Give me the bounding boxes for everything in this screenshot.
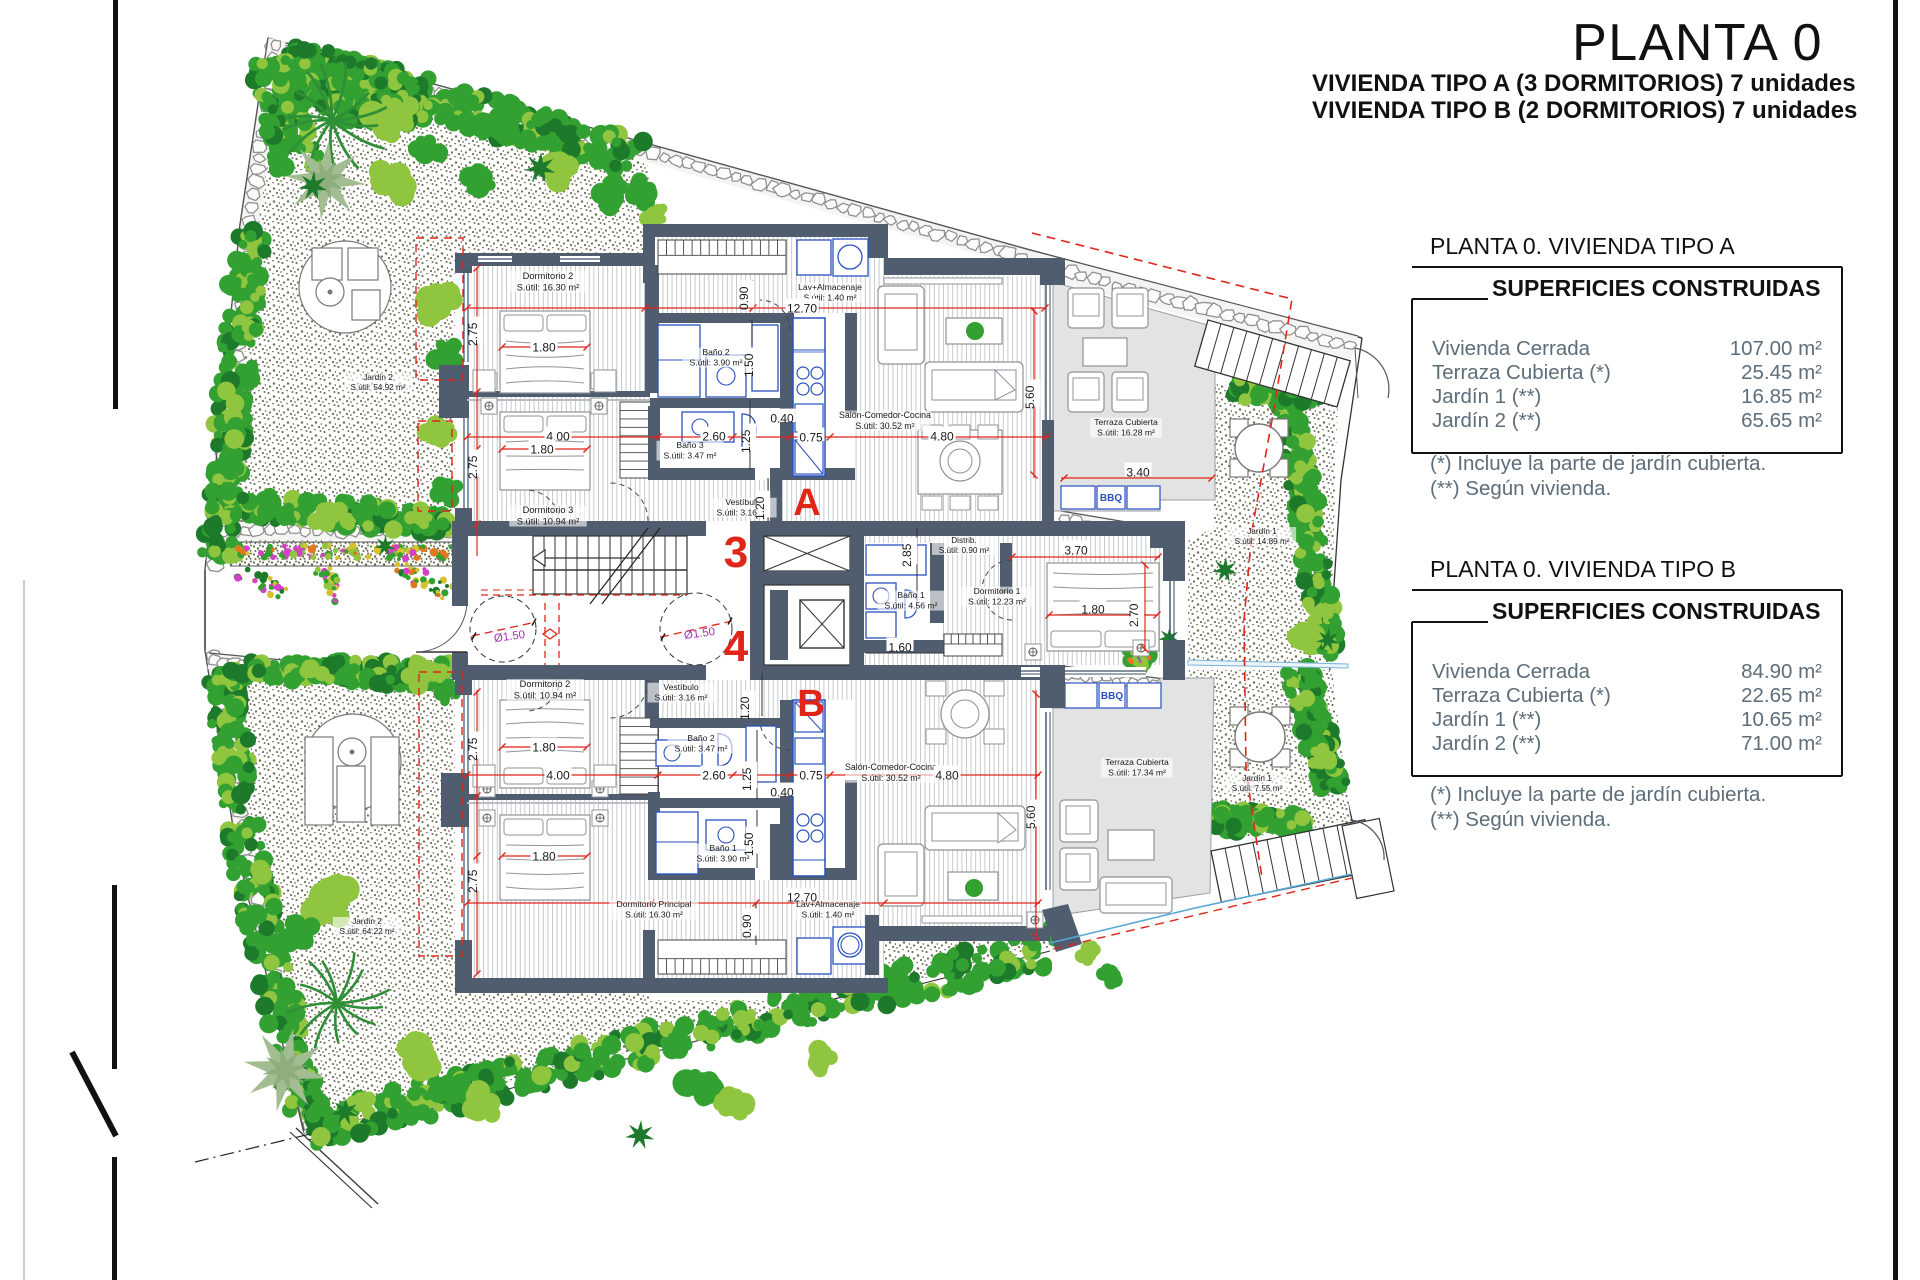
svg-text:Jardín 2: Jardín 2	[363, 373, 393, 382]
svg-text:Dormitorio 2: Dormitorio 2	[523, 271, 574, 281]
svg-text:0.75: 0.75	[799, 430, 823, 444]
svg-text:12.70: 12.70	[787, 301, 817, 315]
svg-text:Salón-Comedor-Cocina: Salón-Comedor-Cocina	[845, 762, 937, 772]
svg-text:107.00 m²: 107.00 m²	[1730, 337, 1822, 360]
svg-text:1.50: 1.50	[742, 353, 756, 377]
svg-text:3.40: 3.40	[1126, 465, 1150, 479]
svg-text:S.útil: 16.30 m²: S.útil: 16.30 m²	[517, 282, 580, 292]
svg-text:2.75: 2.75	[466, 737, 480, 761]
svg-text:(**) Según vivienda.: (**) Según vivienda.	[1430, 477, 1611, 500]
svg-text:Jardín 2 (**): Jardín 2 (**)	[1432, 409, 1541, 432]
svg-text:S.útil: 3.90 m²: S.útil: 3.90 m²	[689, 358, 742, 368]
svg-text:VIVIENDA TIPO A (3 DORMITORIOS: VIVIENDA TIPO A (3 DORMITORIOS) 7 unidad…	[1312, 70, 1856, 97]
svg-text:16.85 m²: 16.85 m²	[1741, 385, 1822, 408]
svg-text:PLANTA 0: PLANTA 0	[1572, 14, 1823, 72]
svg-text:5.60: 5.60	[1023, 385, 1037, 409]
svg-text:Baño 2: Baño 2	[702, 347, 729, 357]
svg-text:0.40: 0.40	[770, 411, 794, 425]
svg-text:S.útil: 30.52 m²: S.útil: 30.52 m²	[855, 421, 914, 431]
svg-text:S.útil: 0.90 m²: S.útil: 0.90 m²	[939, 546, 990, 555]
svg-text:12.70: 12.70	[787, 890, 817, 904]
svg-text:Salón-Comedor-Cocina: Salón-Comedor-Cocina	[839, 410, 931, 420]
svg-text:Jardín 2 (**): Jardín 2 (**)	[1432, 732, 1541, 755]
svg-text:Baño 3: Baño 3	[676, 440, 703, 450]
svg-text:B: B	[797, 683, 824, 725]
svg-text:S.útil: 10.94 m²: S.útil: 10.94 m²	[517, 516, 580, 526]
svg-text:S.útil: 64.22 m²: S.útil: 64.22 m²	[339, 927, 394, 936]
svg-text:4.00: 4.00	[546, 768, 570, 782]
svg-text:BBQ: BBQ	[1101, 691, 1123, 702]
svg-text:Dormitorio 1: Dormitorio 1	[974, 586, 1021, 596]
svg-text:Baño 2: Baño 2	[687, 733, 714, 743]
svg-text:SUPERFICIES CONSTRUIDAS: SUPERFICIES CONSTRUIDAS	[1492, 598, 1820, 624]
svg-text:Dormitorio 3: Dormitorio 3	[523, 505, 574, 515]
svg-text:S.útil: 17.34 m²: S.útil: 17.34 m²	[1108, 768, 1166, 778]
svg-text:S.útil: 7.55 m²: S.útil: 7.55 m²	[1232, 784, 1283, 793]
svg-text:Baño 1: Baño 1	[709, 843, 736, 853]
svg-text:Baño 1: Baño 1	[897, 590, 924, 600]
svg-text:PLANTA 0. VIVIENDA TIPO A: PLANTA 0. VIVIENDA TIPO A	[1430, 233, 1735, 259]
svg-text:S.útil: 14.89 m²: S.útil: 14.89 m²	[1234, 537, 1289, 546]
svg-text:1.25: 1.25	[739, 429, 753, 453]
svg-text:1.80: 1.80	[530, 442, 554, 456]
svg-text:1.20: 1.20	[738, 696, 752, 720]
svg-text:Jardín 1 (**): Jardín 1 (**)	[1432, 708, 1541, 731]
svg-text:S.útil: 3.47 m²: S.útil: 3.47 m²	[674, 744, 727, 754]
svg-text:22.65 m²: 22.65 m²	[1741, 684, 1822, 707]
svg-text:3.70: 3.70	[1064, 543, 1088, 557]
svg-text:(*) Incluye la parte de jardí: (*) Incluye la parte de jardín cubierta.	[1430, 783, 1766, 806]
svg-text:A: A	[793, 482, 820, 524]
svg-text:S.útil: 10.94 m²: S.útil: 10.94 m²	[514, 690, 577, 700]
svg-text:Jardín 1: Jardín 1	[1247, 527, 1277, 536]
svg-text:Jardín 1: Jardín 1	[1242, 774, 1272, 783]
svg-text:S.útil: 54.92 m²: S.útil: 54.92 m²	[350, 383, 405, 392]
svg-text:84.90 m²: 84.90 m²	[1741, 660, 1822, 683]
svg-text:1.80: 1.80	[532, 849, 556, 863]
svg-text:S.útil: 3.47 m²: S.útil: 3.47 m²	[663, 451, 716, 461]
svg-text:S.útil: 16.30 m²: S.útil: 16.30 m²	[625, 910, 683, 920]
svg-text:1.80: 1.80	[532, 740, 556, 754]
svg-text:0.40: 0.40	[770, 785, 794, 799]
svg-text:2.75: 2.75	[466, 455, 480, 479]
svg-text:(*) Incluye la parte de jardí: (*) Incluye la parte de jardín cubierta.	[1430, 452, 1766, 475]
svg-text:SUPERFICIES CONSTRUIDAS: SUPERFICIES CONSTRUIDAS	[1492, 275, 1820, 301]
svg-text:Jardín 2: Jardín 2	[352, 917, 382, 926]
svg-text:5.60: 5.60	[1024, 805, 1038, 829]
svg-text:2.85: 2.85	[900, 543, 914, 567]
svg-text:3: 3	[724, 528, 748, 577]
svg-text:Dormitorio 2: Dormitorio 2	[520, 679, 571, 689]
svg-text:S.útil: 30.52 m²: S.útil: 30.52 m²	[861, 773, 920, 783]
svg-text:71.00 m²: 71.00 m²	[1741, 732, 1822, 755]
svg-text:1.25: 1.25	[740, 767, 754, 791]
svg-text:65.65 m²: 65.65 m²	[1741, 409, 1822, 432]
svg-text:S.útil: 12.23 m²: S.útil: 12.23 m²	[968, 597, 1026, 607]
svg-text:Vivienda Cerrada: Vivienda Cerrada	[1432, 660, 1591, 683]
svg-text:Terraza Cubierta: Terraza Cubierta	[1105, 757, 1169, 767]
svg-text:1.50: 1.50	[742, 832, 756, 856]
svg-text:2.75: 2.75	[466, 869, 480, 893]
svg-text:BBQ: BBQ	[1100, 493, 1122, 504]
svg-text:2.75: 2.75	[466, 322, 480, 346]
svg-text:0.75: 0.75	[799, 768, 823, 782]
svg-text:Vestíbulo: Vestíbulo	[663, 682, 699, 692]
svg-text:Jardín 1 (**): Jardín 1 (**)	[1432, 385, 1541, 408]
svg-text:1.60: 1.60	[888, 640, 912, 654]
svg-text:Terraza Cubierta (*): Terraza Cubierta (*)	[1432, 684, 1611, 707]
svg-text:PLANTA 0. VIVIENDA TIPO B: PLANTA 0. VIVIENDA TIPO B	[1430, 556, 1736, 582]
svg-text:4: 4	[724, 622, 749, 671]
svg-text:0.90: 0.90	[737, 286, 751, 310]
svg-text:1.20: 1.20	[753, 496, 767, 520]
svg-text:VIVIENDA TIPO B (2 DORMITORIOS: VIVIENDA TIPO B (2 DORMITORIOS) 7 unidad…	[1312, 97, 1857, 124]
svg-text:Dormitorio Principal: Dormitorio Principal	[617, 899, 692, 909]
svg-text:10.65 m²: 10.65 m²	[1741, 708, 1822, 731]
svg-text:25.45 m²: 25.45 m²	[1741, 361, 1822, 384]
svg-text:S.útil: 4.56 m²: S.útil: 4.56 m²	[884, 601, 937, 611]
svg-text:4.80: 4.80	[930, 429, 954, 443]
svg-text:2.60: 2.60	[702, 429, 726, 443]
svg-text:1.80: 1.80	[1081, 602, 1105, 616]
svg-text:S.útil: 16.28 m²: S.útil: 16.28 m²	[1097, 428, 1155, 438]
svg-text:Distrib.: Distrib.	[951, 536, 976, 545]
svg-text:Terraza Cubierta (*): Terraza Cubierta (*)	[1432, 361, 1611, 384]
svg-text:Vivienda Cerrada: Vivienda Cerrada	[1432, 337, 1591, 360]
svg-text:(**) Según vivienda.: (**) Según vivienda.	[1430, 808, 1611, 831]
svg-text:2.70: 2.70	[1127, 603, 1141, 627]
svg-text:Terraza Cubierta: Terraza Cubierta	[1094, 417, 1158, 427]
svg-text:Lav+Almacenaje: Lav+Almacenaje	[798, 282, 862, 292]
svg-text:S.útil: 1.40 m²: S.útil: 1.40 m²	[801, 910, 854, 920]
svg-text:S.útil: 3.16 m²: S.útil: 3.16 m²	[654, 693, 707, 703]
svg-text:0.90: 0.90	[740, 914, 754, 938]
svg-text:2.60: 2.60	[702, 768, 726, 782]
svg-text:1.80: 1.80	[532, 340, 556, 354]
svg-text:4.80: 4.80	[935, 768, 959, 782]
